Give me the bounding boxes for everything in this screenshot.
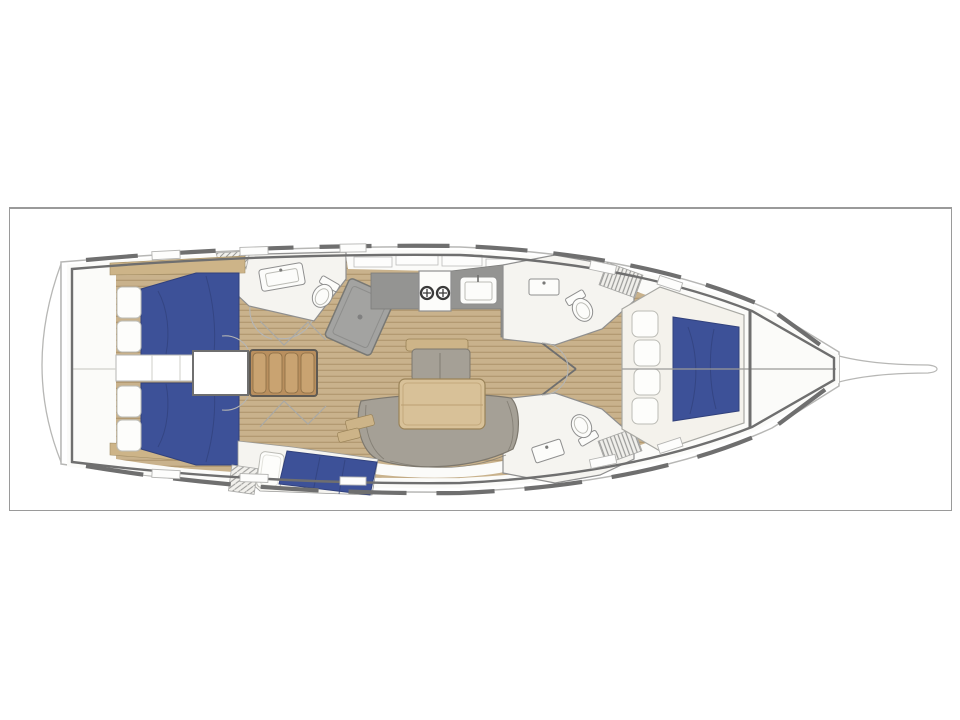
cushion <box>117 386 141 417</box>
cushion <box>117 420 141 451</box>
burner <box>421 287 433 299</box>
cushion <box>117 321 141 352</box>
galley-sink <box>460 275 497 304</box>
dining-table <box>399 379 485 429</box>
sink <box>529 279 559 295</box>
cushion <box>634 340 660 366</box>
galley-counter-left <box>371 273 419 309</box>
bench-cushion <box>412 349 470 381</box>
bowsprit <box>839 356 937 382</box>
locker <box>354 257 392 267</box>
engine-box <box>193 351 248 395</box>
plan-frame <box>9 207 952 511</box>
port-aft-cabin <box>110 256 245 355</box>
transom-platform <box>42 264 61 462</box>
locker <box>396 255 438 265</box>
cushion <box>117 287 141 318</box>
cushion <box>632 311 658 337</box>
double-bed <box>141 273 239 355</box>
yacht-floor-plan <box>10 209 951 510</box>
cushion <box>634 369 660 395</box>
companionway-steps <box>250 350 317 396</box>
cushion <box>632 398 658 424</box>
burner <box>437 287 449 299</box>
